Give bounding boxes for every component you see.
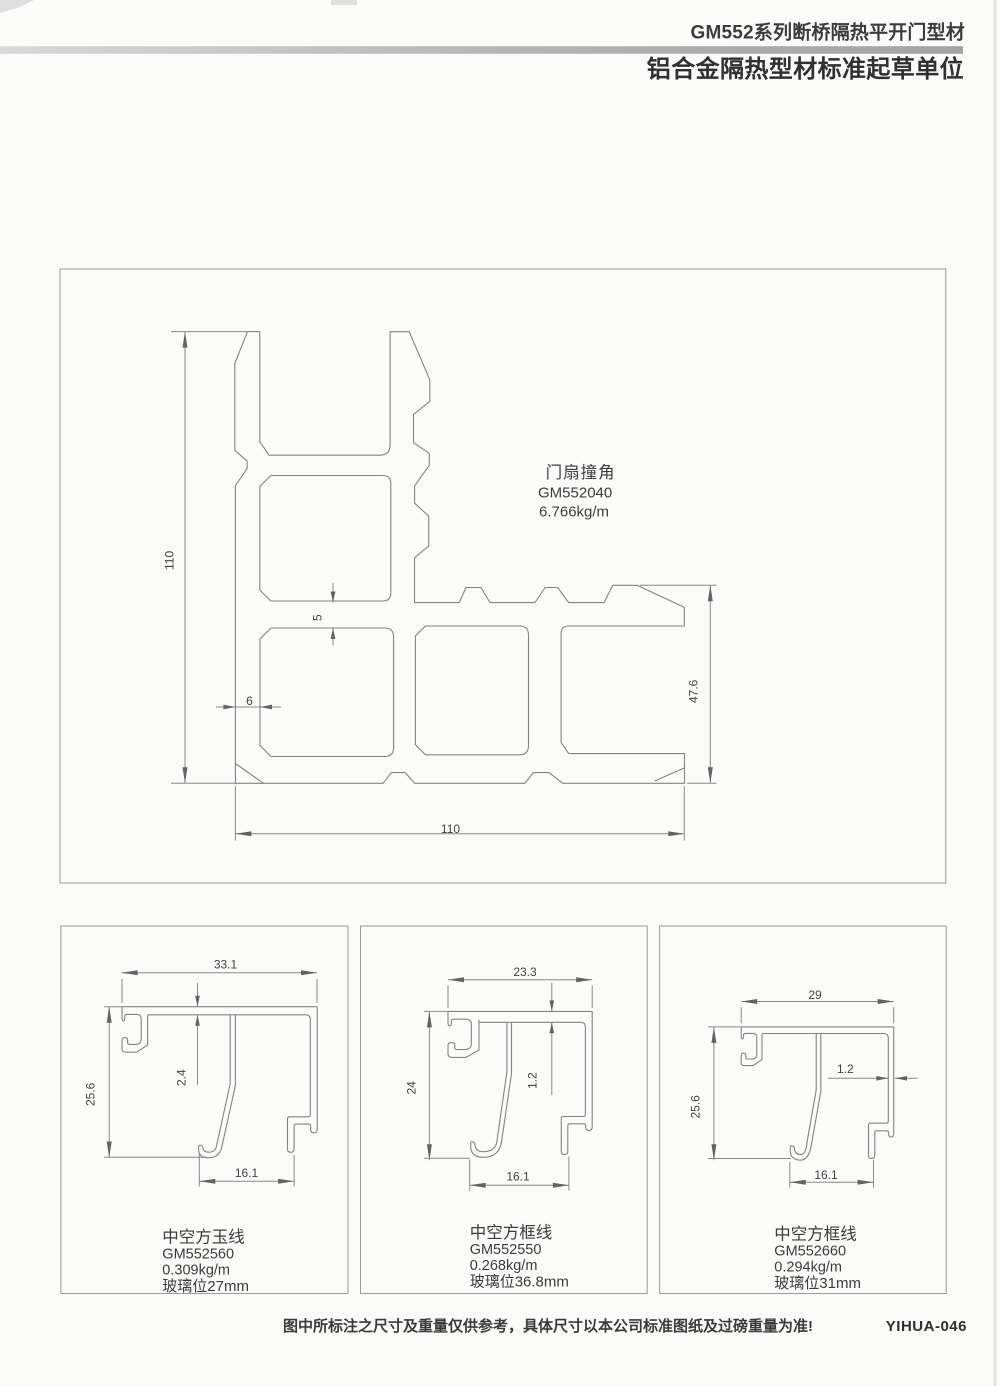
svg-text:5: 5 [311, 614, 325, 621]
svg-text:玻璃位27mm: 玻璃位27mm [162, 1278, 249, 1295]
svg-text:0.294kg/m: 0.294kg/m [774, 1260, 842, 1276]
svg-text:6: 6 [246, 694, 253, 708]
svg-text:GM552系列断桥隔热平开门型材: GM552系列断桥隔热平开门型材 [690, 21, 965, 44]
svg-text:GM552660: GM552660 [774, 1244, 846, 1260]
svg-text:玻璃位31mm: 玻璃位31mm [774, 1275, 861, 1292]
svg-text:47.6: 47.6 [687, 679, 701, 703]
svg-text:GM552550: GM552550 [470, 1242, 542, 1258]
svg-text:24: 24 [404, 1081, 418, 1095]
svg-text:铝合金隔热型材标准起草单位: 铝合金隔热型材标准起草单位 [647, 55, 964, 83]
svg-text:33.1: 33.1 [214, 958, 238, 972]
svg-text:YIHUA-046: YIHUA-046 [886, 1318, 967, 1335]
svg-text:2.4: 2.4 [175, 1069, 189, 1086]
svg-text:16.1: 16.1 [814, 1168, 838, 1182]
svg-text:中空方框线: 中空方框线 [470, 1223, 553, 1242]
svg-text:GM552040: GM552040 [538, 485, 612, 502]
svg-text:0.309kg/m: 0.309kg/m [162, 1263, 230, 1279]
svg-text:中空方框线: 中空方框线 [774, 1225, 857, 1244]
svg-text:6.766kg/m: 6.766kg/m [539, 504, 609, 521]
svg-text:门扇撞角: 门扇撞角 [546, 463, 616, 482]
svg-text:1.2: 1.2 [526, 1072, 540, 1089]
svg-text:110: 110 [163, 551, 177, 570]
svg-text:25.6: 25.6 [689, 1095, 703, 1119]
svg-text:23.3: 23.3 [513, 965, 537, 979]
svg-text:图中所标注之尺寸及重量仅供参考，具体尺寸以本公司标准图纸及过: 图中所标注之尺寸及重量仅供参考，具体尺寸以本公司标准图纸及过磅重量为准! [283, 1317, 813, 1335]
svg-text:0.268kg/m: 0.268kg/m [470, 1258, 538, 1274]
svg-text:16.1: 16.1 [235, 1166, 259, 1180]
svg-text:中空方玉线: 中空方玉线 [162, 1228, 245, 1247]
svg-text:25.6: 25.6 [84, 1082, 98, 1106]
svg-text:29: 29 [808, 988, 822, 1002]
svg-text:110: 110 [441, 822, 460, 836]
svg-text:玻璃位36.8mm: 玻璃位36.8mm [470, 1274, 569, 1291]
svg-text:1.2: 1.2 [837, 1062, 854, 1076]
svg-text:16.1: 16.1 [506, 1170, 530, 1184]
svg-text:GM552560: GM552560 [162, 1247, 234, 1263]
